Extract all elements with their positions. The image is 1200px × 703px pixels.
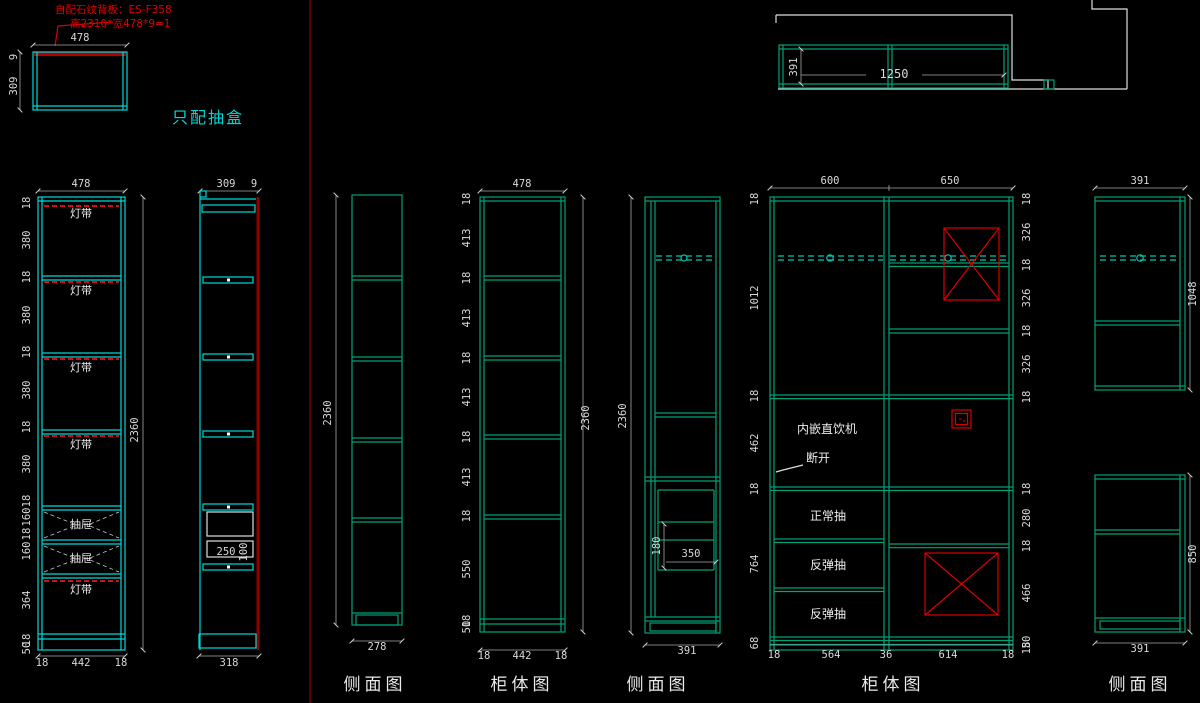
rebound-drawer-label: 反弹抽 (810, 607, 846, 621)
dim-label: 18 (36, 657, 49, 669)
dim-label: 309 (217, 178, 236, 190)
dim-label: 2360 (129, 417, 141, 442)
dim-col: 18326183261832618 (1021, 193, 1033, 404)
view-title: 侧面图 (344, 675, 407, 695)
dim-label: 18 (461, 431, 473, 444)
dim-label: 466 (1021, 584, 1033, 603)
view-title: 柜体图 (491, 675, 554, 695)
rebound-drawer-label: 反弹抽 (810, 558, 846, 572)
light-strip-label: 灯带 (70, 361, 92, 374)
view-title: 柜体图 (862, 675, 925, 695)
dim-label: 18 (1021, 193, 1033, 206)
side-view-lower-391: 850 391 侧面图 (1095, 475, 1199, 695)
back-panel-note-line1: 自配石纹背板：ES-F358 (55, 3, 172, 16)
dim-label: 391 (678, 645, 697, 657)
dim-label: 50 (21, 642, 33, 655)
back-panel-edge (257, 197, 260, 650)
blocked-area-marker (925, 553, 998, 615)
dim-label: 36 (880, 649, 893, 661)
dim-label: 614 (939, 649, 958, 661)
dim-label: 18 (21, 421, 33, 434)
dim-label: 478 (513, 178, 532, 190)
dim-label: 18 (461, 352, 473, 365)
dim-label: 9 (251, 178, 257, 190)
dim-label: 413 (461, 229, 473, 248)
cad-drawing-canvas[interactable]: 自配石纹背板：ES-F358 高2310*宽478*9=1 478 9 309 … (0, 0, 1200, 703)
dim-label: 764 (749, 555, 761, 574)
hanging-rod (1100, 255, 1179, 261)
drawer-label: 抽屉 (70, 517, 92, 531)
section-note: 只配抽盒 (172, 108, 244, 127)
dim-label: 18 (1021, 483, 1033, 496)
dim-col: 181012184621876468 (749, 193, 761, 650)
side-view-upper-391: 391 1048 (1095, 175, 1199, 390)
dim-label: 564 (822, 649, 841, 661)
dim-label: 250 (217, 546, 236, 558)
dim-label: 280 (1021, 509, 1033, 528)
view-title: 侧面图 (627, 675, 690, 695)
side-view-391: 180 350 2360 391 侧面图 (617, 197, 720, 695)
dim-label: 442 (513, 650, 532, 662)
cabinet-plan-outline (779, 45, 1054, 89)
dim-label: 18 (21, 197, 33, 210)
dim-label: 160 (21, 542, 33, 561)
dim-label: 1048 (1187, 281, 1199, 306)
dim-label: 350 (682, 548, 701, 560)
dim-label: 550 (461, 560, 473, 579)
dim-col: 1838018380183801838018160181603641850 (21, 197, 33, 655)
dim-col: 18280184665018 (1021, 483, 1033, 655)
dim-label: 180 (651, 537, 663, 556)
dim-label: 18 (21, 271, 33, 284)
dim-label: 1250 (880, 67, 909, 81)
dim-label: 18 (1021, 259, 1033, 272)
light-strip-label: 灯带 (70, 207, 92, 220)
dim-label: 309 (8, 77, 20, 96)
view-title: 侧面图 (1109, 675, 1172, 695)
dim-label: 18 (749, 193, 761, 206)
break-off-leader-arrow (776, 465, 803, 472)
dim-label: 100 (238, 543, 250, 562)
dim-label: 68 (749, 637, 761, 650)
water-dispenser-label: 内嵌直饮机 (797, 422, 857, 436)
drawer-label: 抽屉 (70, 551, 92, 565)
dim-label: 326 (1021, 289, 1033, 308)
socket-symbol (952, 410, 971, 428)
dim-label: 9 (8, 54, 20, 60)
normal-drawer-label: 正常抽 (810, 509, 846, 523)
dim-label: 18 (1021, 325, 1033, 338)
dim-label: 364 (21, 591, 33, 610)
dim-label: 391 (788, 58, 800, 77)
dim-label: 850 (1187, 545, 1199, 564)
break-off-label: 断开 (806, 450, 830, 465)
dim-label: 2360 (322, 400, 334, 425)
dim-label: 380 (21, 455, 33, 474)
dim-label: 380 (21, 381, 33, 400)
dim-label: 50 (461, 621, 473, 634)
dim-label: 18 (768, 649, 781, 661)
dim-label: 18 (1021, 391, 1033, 404)
dim-label: 18 (749, 483, 761, 496)
dim-label: 18 (1021, 540, 1033, 553)
dim-label: 442 (72, 657, 91, 669)
cabinet-left-elevation: 478 灯带 灯带 灯带 灯带 灯带 (21, 178, 143, 669)
dim-label: 18 (1021, 642, 1033, 655)
dim-label: 326 (1021, 223, 1033, 242)
dim-label: 18 (555, 650, 568, 662)
cad-drawing: 自配石纹背板：ES-F358 高2310*宽478*9=1 478 9 309 … (0, 0, 1200, 703)
dim-label: 391 (1131, 643, 1150, 655)
dim-label: 478 (71, 32, 90, 44)
plan-top-right: 391 1250 (776, 0, 1127, 89)
dim-row: 1844218 (478, 650, 568, 662)
dim-row: 1844218 (36, 657, 128, 669)
dim-label: 413 (461, 468, 473, 487)
dim-label: 318 (220, 657, 239, 669)
light-strip-label: 灯带 (70, 284, 92, 297)
dim-label: 18 (21, 346, 33, 359)
dim-label: 2360 (617, 403, 629, 428)
cabinet-left-side-view: 309 9 250 100 318 (199, 178, 260, 669)
dim-label: 18 (21, 528, 33, 541)
shelf-edges (199, 205, 256, 648)
light-strip-label: 灯带 (70, 438, 92, 451)
dim-label: 326 (1021, 355, 1033, 374)
dim-label: 18 (478, 650, 491, 662)
dim-label: 380 (21, 231, 33, 250)
light-strip-label: 灯带 (70, 583, 92, 596)
dim-row: 185643661418 (768, 649, 1015, 661)
hanging-rod (778, 255, 1006, 261)
dim-col: 18413184131841318413185501850 (461, 193, 473, 634)
dim-label: 278 (368, 641, 387, 653)
wardrobe-elevation: 600 650 (749, 175, 1033, 695)
dim-label: 413 (461, 309, 473, 328)
dim-label: 413 (461, 388, 473, 407)
dim-label: 18 (21, 495, 33, 508)
plan-top-left: 自配石纹背板：ES-F358 高2310*宽478*9=1 478 9 309 … (8, 3, 244, 127)
dim-label: 2360 (580, 405, 592, 430)
dim-label: 478 (72, 178, 91, 190)
side-view-278: 2360 278 侧面图 (322, 195, 407, 695)
dim-label: 18 (115, 657, 128, 669)
dim-label: 462 (749, 434, 761, 453)
dim-label: 650 (941, 175, 960, 187)
blocked-area-marker (944, 228, 999, 300)
hanging-rod (656, 255, 715, 261)
dim-label: 18 (461, 510, 473, 523)
cabinet-elevation-478: 478 2360 1844218 18413184131841318413185… (461, 178, 592, 695)
dim-label: 18 (1002, 649, 1015, 661)
dim-label: 160 (21, 508, 33, 527)
dim-label: 18 (749, 390, 761, 403)
dim-label: 18 (461, 272, 473, 285)
dim-label: 391 (1131, 175, 1150, 187)
dim-label: 1012 (749, 285, 761, 310)
dim-label: 380 (21, 306, 33, 325)
dim-label: 600 (821, 175, 840, 187)
dim-label: 18 (461, 193, 473, 206)
